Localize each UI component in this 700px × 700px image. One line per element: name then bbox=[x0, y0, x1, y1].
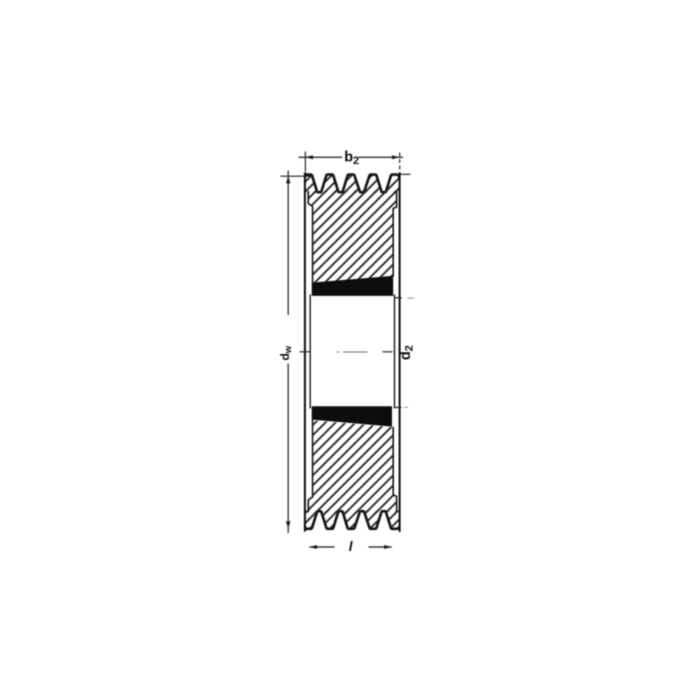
svg-text:l: l bbox=[349, 539, 353, 554]
